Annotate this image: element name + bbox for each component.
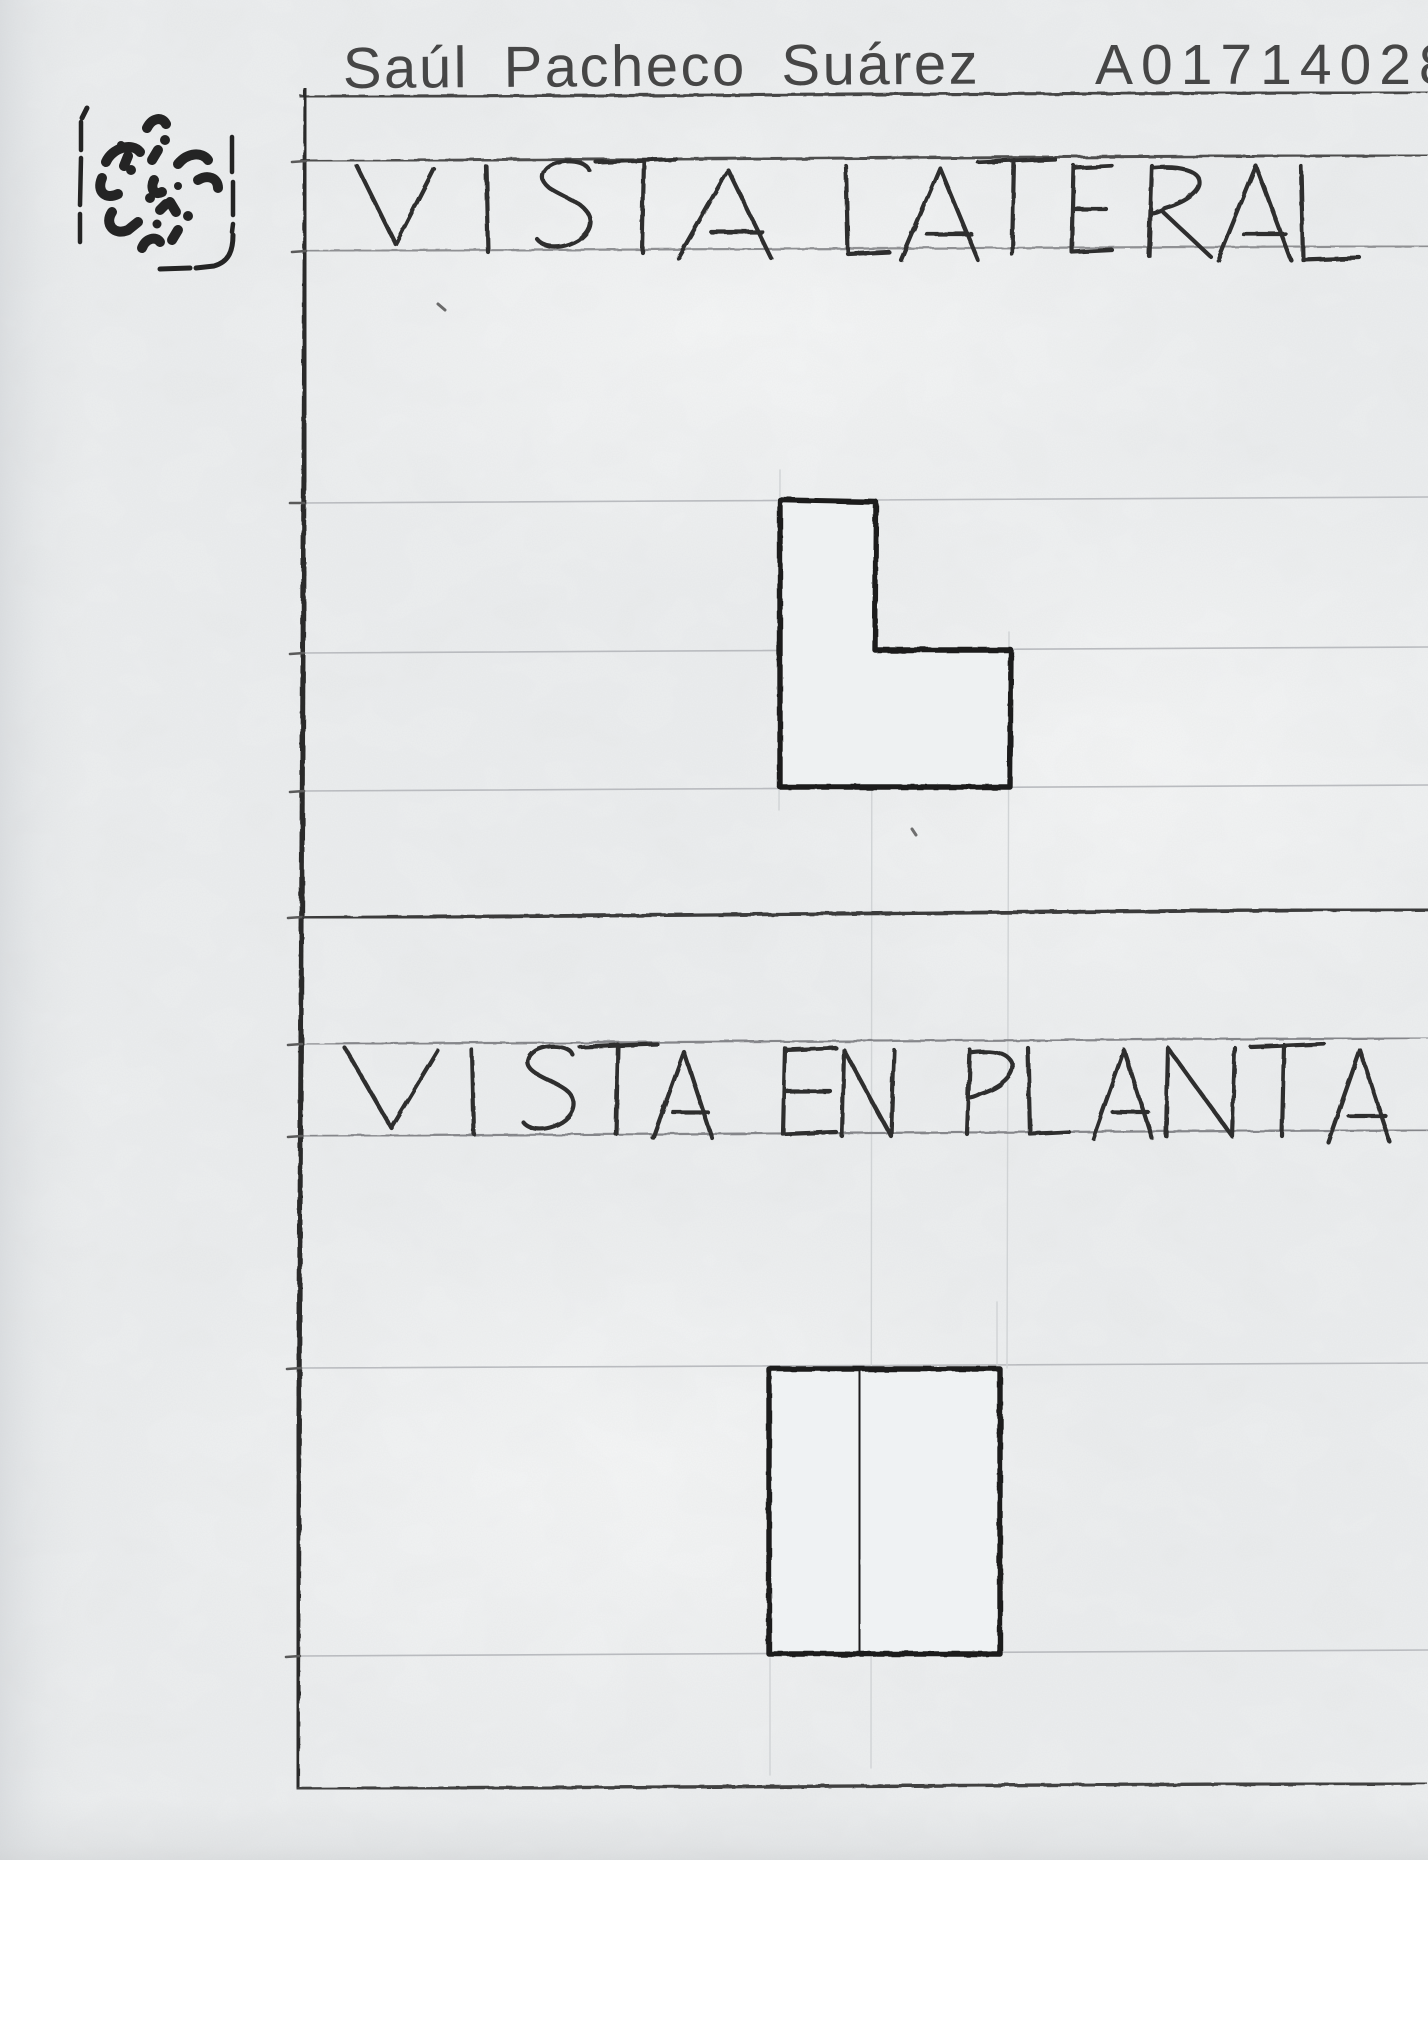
svg-text:Saúl Pacheco Suárez: Saúl Pacheco Suárez [343, 32, 981, 101]
svg-text:A01714028: A01714028 [1095, 33, 1428, 97]
